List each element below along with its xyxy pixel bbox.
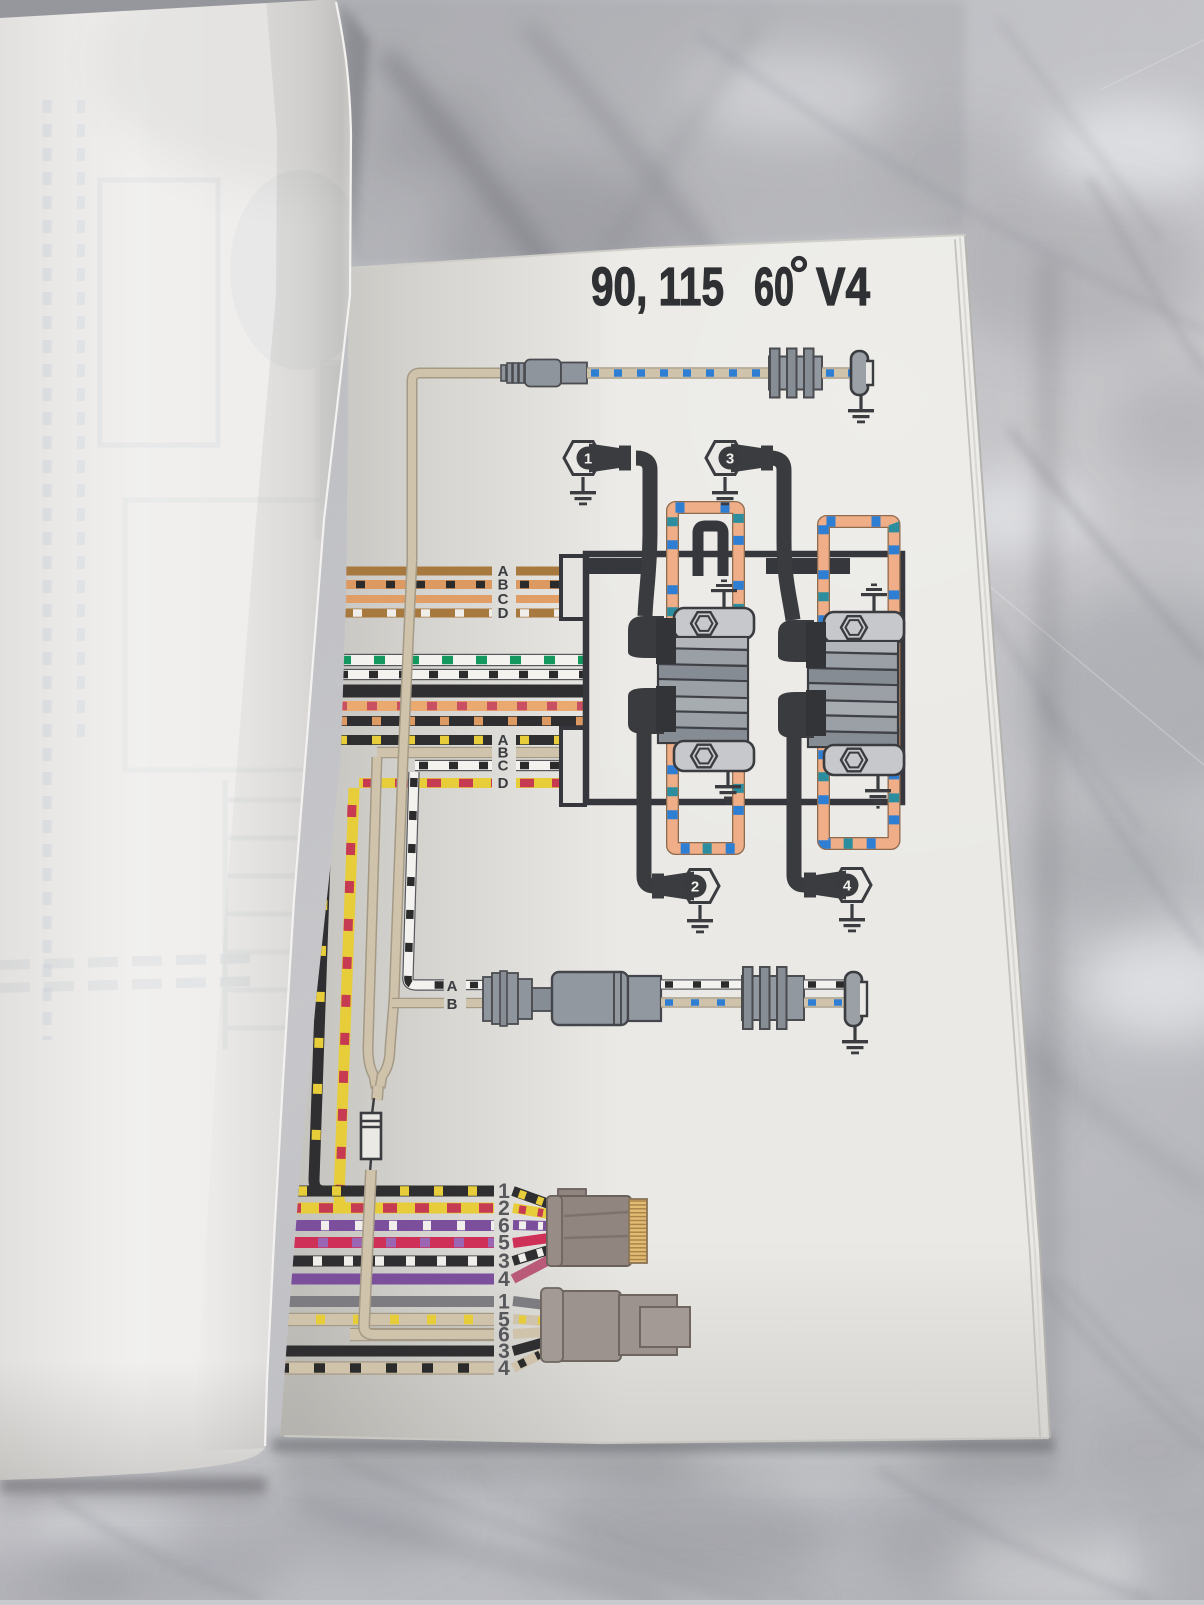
svg-text:B: B bbox=[447, 996, 458, 1013]
svg-text:2: 2 bbox=[691, 879, 699, 896]
svg-text:C: C bbox=[498, 758, 509, 775]
svg-text:4: 4 bbox=[498, 1357, 510, 1380]
svg-text:60: 60 bbox=[754, 257, 794, 317]
svg-text:D: D bbox=[498, 605, 509, 622]
svg-text:4: 4 bbox=[843, 878, 852, 895]
svg-text:V4: V4 bbox=[816, 257, 870, 317]
svg-text:3: 3 bbox=[726, 451, 734, 468]
svg-text:D: D bbox=[498, 775, 509, 792]
svg-text:A: A bbox=[447, 978, 458, 995]
svg-text:1: 1 bbox=[584, 451, 592, 468]
svg-text:90, 115: 90, 115 bbox=[591, 257, 724, 317]
svg-text:4: 4 bbox=[498, 1268, 510, 1291]
